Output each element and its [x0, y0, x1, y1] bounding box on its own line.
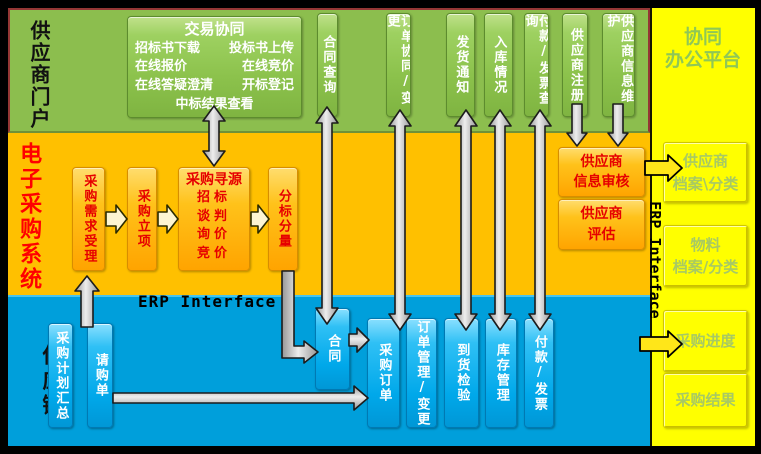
box-goods-inspection: 到货检验	[444, 318, 479, 428]
box-shipping-notice: 发货通知	[446, 13, 475, 117]
label-erp-interface-horizontal: ERP Interface	[138, 292, 276, 311]
box-purchase-sourcing: 采购寻源 招标 谈判 询价 竞价	[178, 167, 250, 271]
box-trade-collaboration: 交易协同 招标书下载 投标书上传 在线报价 在线竞价 在线答疑澄清 开标登记 中…	[127, 16, 302, 118]
box-supplier-evaluation: 供应商 评估	[558, 199, 645, 250]
sourcing-item-inquiry: 询价	[197, 226, 231, 244]
box-payment-invoice: 付款/发票	[524, 318, 554, 428]
box-purchase-order: 采购订单	[367, 318, 400, 428]
trade-item-bid-opening: 开标登记	[242, 77, 294, 96]
box-order-collab-change: 订单协同/变更	[386, 13, 411, 117]
label-collab-platform: 协同 办公平台	[656, 26, 750, 72]
trade-item-online-bidding: 在线竞价	[242, 58, 294, 77]
box-purchase-demand: 采购需求受理	[72, 167, 105, 271]
box-supplier-archive-category: 供应商 档案\分类	[663, 142, 748, 203]
box-purchase-plan-summary: 采购计划汇总	[48, 323, 73, 428]
sourcing-item-negotiate: 谈判	[197, 208, 231, 226]
box-purchase-result: 采购结果	[663, 373, 748, 428]
box-supplier-info-maintain: 供应商信息维护	[602, 13, 635, 117]
trade-item-online-quote: 在线报价	[135, 58, 187, 77]
label-supplier-portal: 供应商门户	[28, 20, 49, 130]
trade-row: 在线报价 在线竞价	[128, 58, 301, 77]
trade-row: 在线答疑澄清 开标登记	[128, 77, 301, 96]
box-purchase-progress: 采购进度	[663, 310, 748, 372]
box-order-management-change: 订单管理/变更	[406, 318, 437, 428]
label-eprocurement: 电子采购系统	[17, 142, 40, 292]
label-collab-line2: 办公平台	[656, 49, 750, 72]
sourcing-item-tender: 招标	[197, 189, 231, 207]
sourcing-item-bidding: 竞价	[197, 245, 231, 263]
trade-item-bid-upload: 投标书上传	[229, 40, 294, 59]
box-material-archive-category: 物料 档案/分类	[663, 225, 748, 287]
box-inventory-management: 库存管理	[485, 318, 517, 428]
trade-item-bid-download: 招标书下载	[135, 40, 200, 59]
trade-item-online-clarify: 在线答疑澄清	[135, 77, 213, 96]
label-collab-line1: 协同	[656, 26, 750, 49]
trade-item-award-result: 中标结果查看	[175, 96, 253, 115]
trade-collaboration-title: 交易协同	[184, 20, 244, 40]
diagram-canvas: 供应商门户 电子采购系统 供应链 协同 办公平台 交易协同 招标书下载 投标书上…	[0, 0, 761, 454]
sourcing-title: 采购寻源	[186, 171, 242, 189]
trade-row: 招标书下载 投标书上传	[128, 40, 301, 59]
box-payment-invoice-query: 付款/发票查询	[524, 13, 549, 117]
box-warehouse-status: 入库情况	[484, 13, 513, 117]
box-supplier-info-review: 供应商 信息审核	[558, 147, 645, 197]
box-supplier-register: 供应商注册	[562, 13, 588, 117]
box-purchase-project: 采购立项	[127, 167, 157, 271]
label-erp-interface-vertical: ERP Interface	[646, 199, 664, 321]
box-contract: 合同	[315, 308, 350, 390]
box-contract-query: 合同查询	[317, 13, 338, 117]
box-lot-split: 分标分量	[268, 167, 298, 271]
box-purchase-requisition: 请购单	[87, 323, 113, 428]
